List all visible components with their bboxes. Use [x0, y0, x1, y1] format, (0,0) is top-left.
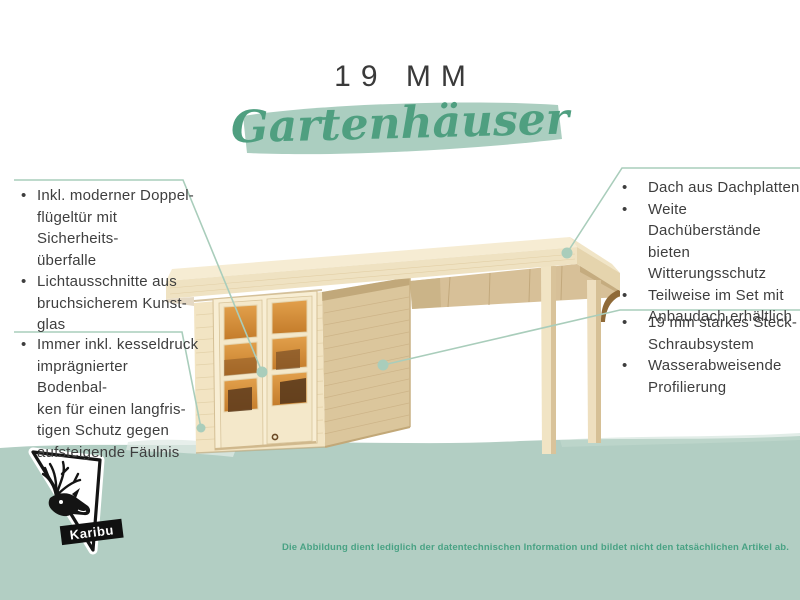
feature-item: Wasserabweisende Profilierung — [622, 355, 800, 398]
callout-dot-wall — [378, 360, 389, 371]
feature-item: Lichtausschnitte aus bruchsicherem Kunst… — [21, 271, 199, 336]
feature-list-floor-beams: Immer inkl. kesseldruck imprägnierter Bo… — [21, 334, 199, 463]
feature-item: Immer inkl. kesseldruck imprägnierter Bo… — [21, 334, 199, 463]
garden-house — [166, 237, 620, 454]
feature-item: Weite Dachüberstände bieten Witterungssc… — [622, 199, 800, 285]
feature-list-walls: 19 mm starkes Steck- SchraubsystemWasser… — [622, 312, 800, 398]
infographic-page: Karibu 19 MM Gartenhäuser Inkl. moderner… — [0, 0, 800, 600]
callout-dot-roof — [562, 248, 573, 259]
size-headline: 19 MM — [0, 60, 800, 94]
feature-item: Dach aus Dachplatten — [622, 177, 800, 199]
image-disclaimer: Die Abbildung dient lediglich der datent… — [282, 542, 789, 553]
feature-list-roof: Dach aus DachplattenWeite Dachüberstände… — [622, 177, 800, 328]
feature-item: 19 mm starkes Steck- Schraubsystem — [622, 312, 800, 355]
feature-item: Inkl. moderner Doppel- flügeltür mit Sic… — [21, 185, 199, 271]
callout-dot-door — [257, 367, 268, 378]
feature-list-door: Inkl. moderner Doppel- flügeltür mit Sic… — [21, 185, 199, 336]
